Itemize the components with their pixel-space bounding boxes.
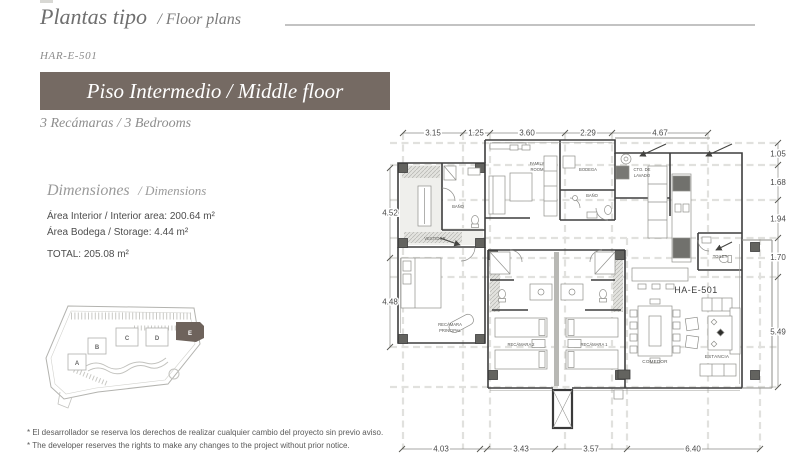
dim-right-2: 1.68: [770, 178, 786, 187]
dim-top-1: 3.15: [425, 129, 441, 138]
room-label-vestidor: VESTIDOR: [424, 236, 445, 241]
room-label-principal-2: PRINCIPAL: [439, 328, 461, 333]
plan-unit-label: HA-E-501: [674, 285, 718, 295]
dimensions-heading: Dimensiones / Dimensions: [47, 182, 206, 200]
room-label-recamara1: RECÁMARA 1: [581, 342, 609, 347]
page-title-es: Plantas tipo: [40, 4, 147, 29]
room-label-comedor: COMEDOR: [642, 359, 668, 364]
dim-right-5: 5.49: [770, 328, 786, 337]
dim-bottom-3: 3.57: [583, 445, 599, 454]
dim-top-5: 4.67: [652, 129, 668, 138]
room-label-bodega: BODEGA: [579, 167, 597, 172]
dim-left-2: 4.48: [382, 298, 398, 307]
room-label-bano-principal: BAÑO: [452, 204, 465, 209]
elevator-shaft: [553, 390, 572, 428]
corner-tick: [40, 0, 53, 3]
disclaimer-en: * The developer reserves the rights to m…: [27, 439, 383, 452]
furniture: [401, 143, 740, 399]
dim-bottom-1: 4.03: [433, 445, 449, 454]
page: Plantas tipo / Floor plans HAR-E-501 Pis…: [0, 0, 808, 471]
bedrooms-subtitle: 3 Recámaras / 3 Bedrooms: [40, 116, 191, 132]
dim-right-4: 1.70: [770, 253, 786, 262]
room-label-estancia: ESTANCIA: [705, 354, 730, 359]
area-lines: Área Interior / Interior area: 200.64 m²…: [47, 209, 215, 241]
dim-right-1: 1.05: [770, 150, 786, 159]
site-plan: A B C D E: [38, 292, 233, 416]
room-label-lavado-2: LAVADO: [634, 173, 651, 178]
page-title: Plantas tipo / Floor plans: [40, 4, 241, 30]
room-label-family-1: FAMILY: [530, 161, 545, 166]
dimensions-heading-es: Dimensiones: [47, 182, 130, 199]
dim-left-1: 4.52: [382, 209, 398, 218]
dimensions-heading-en: / Dimensions: [138, 183, 206, 198]
room-label-bano2: BAÑO: [586, 193, 599, 198]
floor-plan: VESTIDOR BAÑO FAMILY ROOM BODEGA BAÑO CT…: [380, 118, 808, 456]
dim-right-3: 1.94: [770, 215, 786, 224]
total-area-line: TOTAL: 205.08 m²: [47, 249, 129, 260]
room-label-recamara2: RECÁMARA 2: [508, 342, 536, 347]
building-label-c: C: [125, 336, 130, 342]
unit-code: HAR-E-501: [40, 50, 97, 62]
building-label-b: B: [95, 345, 100, 351]
disclaimer: * El desarrollador se reserva los derech…: [27, 426, 383, 452]
dim-bottom-4: 6.40: [685, 445, 701, 454]
grid-lines: [390, 133, 778, 449]
disclaimer-es: * El desarrollador se reserva los derech…: [27, 426, 383, 439]
dim-top-4: 2.29: [580, 129, 596, 138]
building-label-d: D: [155, 336, 160, 342]
room-label-lavado-1: CTO. DE: [634, 167, 651, 172]
building-label-e: E: [188, 331, 192, 337]
floor-banner: Piso Intermedio / Middle floor: [40, 72, 390, 110]
building-label-a: A: [75, 361, 80, 367]
dim-top-3: 3.60: [519, 129, 535, 138]
interior-area-line: Área Interior / Interior area: 200.64 m²: [47, 209, 215, 225]
room-label-toilet: TOILET: [713, 254, 728, 259]
dim-bottom-2: 3.43: [513, 445, 529, 454]
storage-area-line: Área Bodega / Storage: 4.44 m²: [47, 225, 215, 241]
room-label-family-2: ROOM: [530, 167, 544, 172]
dim-top-2: 1.25: [468, 129, 484, 138]
room-label-principal-1: RECÁMARA: [438, 322, 462, 327]
header-rule: [285, 24, 755, 26]
center-spine-wall: [554, 252, 559, 386]
dimension-labels: 3.15 1.25 3.60 2.29 4.67 4.03 3.43 3.57 …: [382, 129, 786, 454]
page-title-en: / Floor plans: [157, 11, 241, 28]
